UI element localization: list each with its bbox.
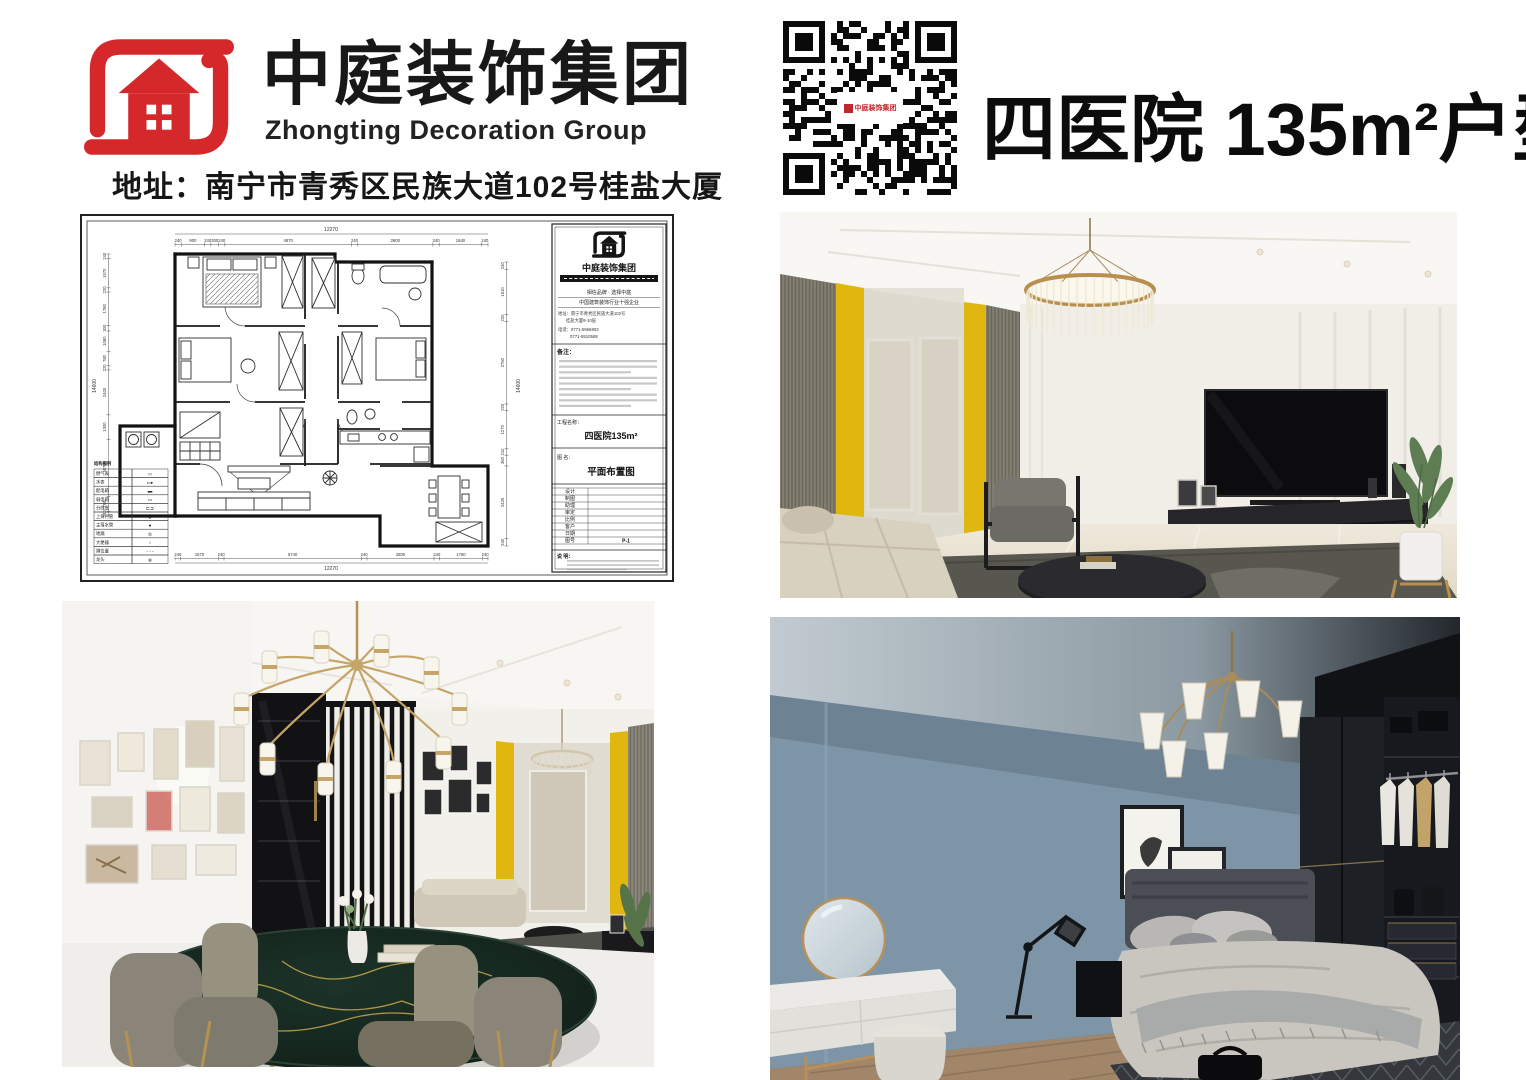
project-name-value: 四医院135m² — [584, 430, 637, 441]
qr-module — [795, 135, 801, 141]
qr-module — [891, 183, 897, 189]
dimension-label: 240 — [102, 252, 107, 260]
field-label: 助理 — [565, 502, 575, 509]
display-cabinet — [252, 693, 326, 943]
dimension-label: 220 — [102, 364, 107, 372]
qr-module — [825, 117, 831, 123]
bedroom-photo — [770, 617, 1460, 1080]
field-label: 设计 — [565, 488, 575, 495]
dimension-label: 1300 — [102, 422, 107, 432]
legend-symbol: ▭▸ — [147, 480, 154, 485]
legend-title: 结构图例 — [94, 460, 112, 467]
field-label: 客户 — [565, 523, 575, 530]
titleblock-tel2: 0771-5510588 — [570, 334, 598, 339]
legend-symbol: ▬ — [148, 489, 153, 494]
dimension-label: 240 — [174, 552, 182, 557]
legend-symbol: ⊏⊐ — [146, 506, 154, 511]
qr-module — [837, 69, 843, 75]
dimension-label: 780 — [102, 354, 107, 362]
qr-module — [939, 45, 945, 51]
qr-module — [951, 135, 957, 141]
qr-module — [861, 189, 867, 195]
total-dim-right: 14600 — [516, 379, 522, 393]
legend-label: 分线盒 — [96, 504, 110, 511]
qr-module — [873, 171, 879, 177]
legend-symbol: ▭ — [148, 471, 153, 476]
qr-module — [855, 57, 861, 63]
qr-module — [951, 57, 957, 63]
qr-module — [903, 189, 909, 195]
dimension-label: 240 — [500, 538, 505, 546]
qr-center-logo: 中庭装饰集团 — [837, 92, 903, 124]
plan-title-block: 中庭装饰集团 相信品牌 · 选择中庭 中国建筑装饰行业十强企业 地址：南宁市青秀… — [552, 224, 666, 572]
dimension-label: 240 — [361, 552, 369, 557]
legend-symbol: ○ — [149, 540, 152, 545]
qr-module — [879, 45, 885, 51]
legend-symbol: ▭ — [148, 497, 153, 502]
qr-module — [951, 117, 957, 123]
dining-room-photo — [62, 601, 654, 1067]
qr-module — [951, 81, 957, 87]
dimension-label: 1080 — [102, 336, 107, 346]
living-room-photo — [780, 212, 1457, 598]
gallery-wall — [80, 721, 244, 883]
qr-module — [819, 57, 825, 63]
field-label: 比例 — [565, 516, 575, 523]
qr-module — [831, 171, 837, 177]
drawing-name-value: 平面布置图 — [587, 466, 635, 478]
qr-module — [807, 45, 813, 51]
dimension-label: 220 — [102, 286, 107, 294]
dimension-label: 300 — [102, 324, 107, 332]
company-address: 地址：南宁市青秀区民族大道102号桂盐大厦 — [112, 162, 723, 206]
legend-label: 主落水管 — [96, 522, 114, 529]
titleblock-addr2: 桂盐大厦9-10层 — [566, 317, 597, 324]
qr-module — [861, 27, 867, 33]
qr-module — [933, 129, 939, 135]
dimension-label: 1270 — [500, 424, 505, 434]
qr-module — [807, 177, 813, 183]
qr-module — [945, 189, 951, 195]
legend-label: 龙头 — [96, 556, 105, 563]
field-label: 制图 — [565, 495, 575, 502]
drawing-name-label: 图 名： — [557, 454, 573, 461]
legend-symbol: - - - — [146, 549, 154, 554]
dimension-label: 2800 — [396, 552, 406, 557]
dimension-label: 1640 — [456, 238, 466, 243]
qr-module — [855, 153, 861, 159]
qr-module — [909, 75, 915, 81]
qr-module — [945, 99, 951, 105]
dimension-label: 240 — [351, 238, 359, 243]
note-placeholder-lines — [559, 360, 657, 407]
field-label: 日期 — [565, 531, 575, 537]
dimension-label: 240 — [433, 552, 441, 557]
dimension-label: 1570 — [102, 268, 107, 278]
dimension-label: 2400 — [102, 387, 107, 397]
qr-module — [837, 183, 843, 189]
qr-module — [843, 45, 849, 51]
qr-module — [951, 93, 957, 99]
dimension-label: 4870 — [283, 238, 293, 243]
flyer-page: 中庭装饰集团 Zhongting Decoration Group 地址：南宁市… — [0, 0, 1526, 1080]
logo-house-icon — [92, 47, 227, 147]
qr-module — [819, 69, 825, 75]
qr-module — [915, 111, 921, 117]
qr-module — [951, 183, 957, 189]
remark-label: 说 明： — [557, 553, 573, 560]
dimension-label: 210 — [500, 448, 505, 456]
dimension-label: 900 — [189, 238, 197, 243]
dimension-label: 2420 — [500, 497, 505, 507]
legend-symbol: ⊕ — [148, 557, 152, 562]
titleblock-slogan1: 相信品牌 · 选择中庭 — [587, 289, 631, 296]
floor-plan-sheet: 240900240300240487024029002401640240 240… — [80, 214, 674, 582]
qr-module — [879, 189, 885, 195]
tv-screen — [1205, 390, 1387, 496]
dimension-label: 1780 — [456, 552, 466, 557]
titleblock-slogan2: 中国建筑装饰行业十强企业 — [579, 299, 639, 306]
dimension-label: 2750 — [500, 357, 505, 367]
legend-label: 配电箱 — [96, 487, 110, 494]
dimension-label: 240 — [433, 238, 441, 243]
qr-module — [903, 33, 909, 39]
total-dim-top: 12270 — [324, 227, 338, 233]
legend-label: 地漏 — [96, 530, 105, 537]
brand-name-cn: 中庭装饰集团 — [262, 40, 694, 109]
brand-name-en: Zhongting Decoration Group — [265, 115, 647, 146]
qr-module — [801, 123, 807, 129]
dimension-label: 2900 — [391, 238, 401, 243]
floor-plan-drawing: 240900240300240487024029002401640240 240… — [80, 214, 674, 582]
wechat-qr-code: 中庭装饰集团 — [775, 10, 965, 206]
qr-module — [855, 33, 861, 39]
dimension-label: 240 — [218, 238, 226, 243]
legend-symbol: ⊗ — [148, 514, 152, 519]
company-logo — [84, 30, 234, 164]
qr-module — [801, 75, 807, 81]
qr-module — [909, 177, 915, 183]
qr-module — [819, 189, 825, 195]
project-name-label: 工程名称： — [557, 419, 582, 426]
qr-module — [849, 135, 855, 141]
field-label: 图号 — [565, 538, 575, 544]
qr-module — [855, 81, 861, 87]
qr-module — [921, 177, 927, 183]
dimension-label: 240 — [500, 261, 505, 269]
qr-module — [951, 147, 957, 153]
qr-module — [867, 129, 873, 135]
qr-logo-text: 中庭装饰集团 — [855, 103, 897, 113]
titleblock-addr1: 地址：南宁市青秀区民族大道102号 — [558, 310, 625, 317]
qr-module — [849, 171, 855, 177]
titleblock-tel1: 电话：0771-5966803 — [558, 326, 599, 333]
slat-partition — [326, 701, 416, 941]
qr-module — [885, 141, 891, 147]
qr-module — [939, 87, 945, 93]
qr-module — [879, 57, 885, 63]
qr-module — [789, 87, 795, 93]
dimension-label: 360 — [500, 456, 505, 464]
qr-module — [897, 69, 903, 75]
qr-module — [897, 39, 903, 45]
qr-module — [879, 33, 885, 39]
legend-label: 上排污管 — [96, 513, 114, 520]
dimension-label: 1570 — [195, 552, 205, 557]
total-dim-left: 14600 — [92, 379, 98, 393]
dimension-label: 1510 — [500, 287, 505, 297]
field-label: 审定 — [565, 509, 575, 516]
dimension-label: 220 — [500, 403, 505, 411]
dimension-label: 220 — [500, 314, 505, 322]
legend-label: 水表 — [96, 479, 105, 486]
page-title: 四医院 135m²户型 — [982, 70, 1526, 177]
legend-label: 蹲位置 — [96, 547, 110, 554]
total-dim-bottom: 12270 — [324, 566, 338, 572]
drawing-number-value: P-1 — [622, 538, 630, 544]
qr-module — [867, 69, 873, 75]
qr-logo-mark — [844, 104, 853, 113]
dimension-label: 240 — [218, 552, 226, 557]
qr-module — [789, 69, 795, 75]
legend-label: 燃气表 — [96, 470, 110, 477]
dimension-label: 5740 — [288, 552, 298, 557]
qr-module — [837, 141, 843, 147]
legend-label: 大便器 — [96, 539, 110, 546]
qr-module — [801, 105, 807, 111]
titleblock-note-label: 备注： — [556, 348, 575, 356]
dimension-label: 1780 — [102, 303, 107, 313]
qr-module — [915, 147, 921, 153]
qr-module — [807, 69, 813, 75]
qr-module — [843, 177, 849, 183]
qr-module — [831, 57, 837, 63]
legend-symbol: ● — [149, 523, 152, 528]
dimension-label: 240 — [482, 552, 490, 557]
titleblock-company: 中庭装饰集团 — [582, 262, 636, 273]
pouf-stool — [874, 1024, 946, 1080]
dimension-label: 240 — [481, 238, 489, 243]
legend-label: 弱电箱 — [96, 496, 110, 503]
nightstand — [1076, 961, 1122, 1017]
dimension-label: 240 — [175, 238, 183, 243]
qr-module — [861, 141, 867, 147]
qr-module — [819, 81, 825, 87]
